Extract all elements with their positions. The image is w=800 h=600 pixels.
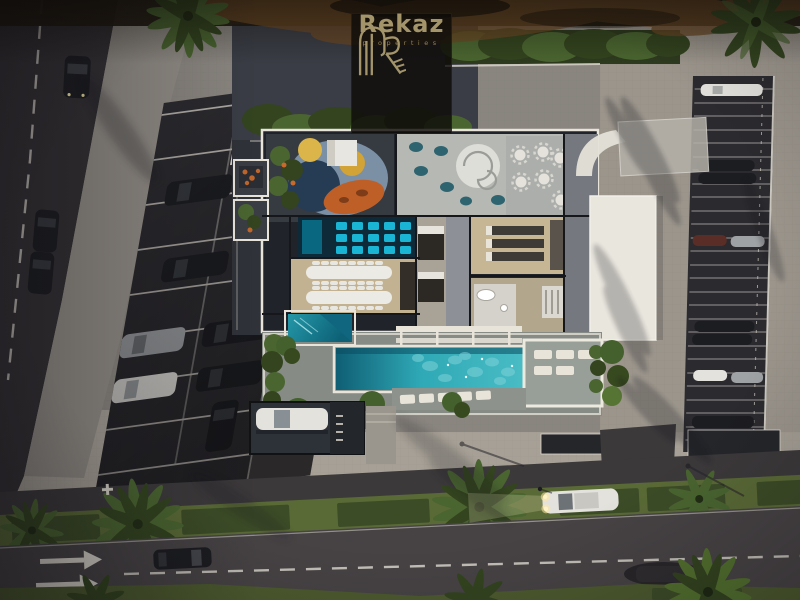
rekaz-logo-monogram-icon — [352, 20, 406, 80]
rekaz-logo: Rekaz properties — [351, 13, 452, 134]
aerial-property-render: Rekaz properties — [0, 0, 800, 600]
